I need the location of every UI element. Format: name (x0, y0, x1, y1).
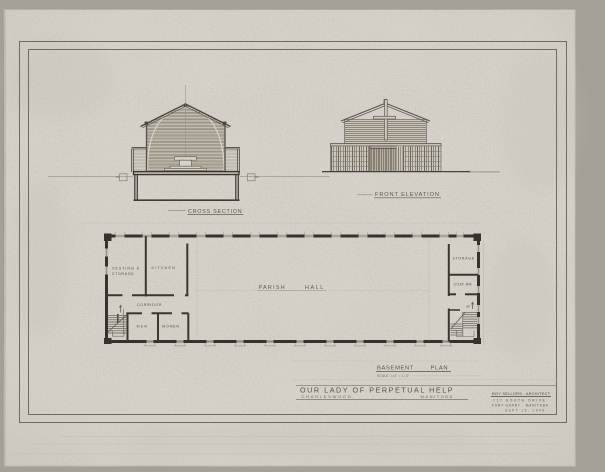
svg-text:UP: UP (466, 305, 470, 309)
svg-text:.: . (386, 394, 387, 399)
svg-text:717 SOUTH DRIVE: 717 SOUTH DRIVE (493, 399, 547, 403)
svg-text:VESTING &: VESTING & (112, 267, 140, 271)
svg-text:SCALE: 1/4" = 1'-0": SCALE: 1/4" = 1'-0" (377, 374, 410, 378)
svg-text:STORAGE: STORAGE (453, 257, 475, 261)
svg-text:FORT GARRY . MANITOBA: FORT GARRY . MANITOBA (492, 403, 549, 407)
svg-text:HALL: HALL (305, 285, 325, 291)
svg-text:MEN: MEN (137, 325, 149, 329)
svg-text:CHARLESWOOD: CHARLESWOOD (302, 394, 353, 399)
svg-text:WOMEN: WOMEN (162, 325, 180, 329)
svg-text:COAT RM: COAT RM (454, 283, 472, 287)
svg-text:PLAN: PLAN (431, 366, 449, 372)
svg-text:MANITOBA: MANITOBA (421, 394, 454, 399)
svg-text:KITCHEN: KITCHEN (152, 266, 177, 270)
svg-text:BASEMENT: BASEMENT (377, 366, 414, 372)
svg-text:PARISH: PARISH (259, 285, 286, 291)
svg-text:FRONT ELEVATION: FRONT ELEVATION (375, 192, 440, 198)
svg-text:STORAGE: STORAGE (112, 272, 134, 276)
svg-text:ROY SELLORS : ARCHITECT: ROY SELLORS : ARCHITECT (492, 392, 551, 396)
svg-text:SEPT 15, 1948: SEPT 15, 1948 (505, 408, 545, 412)
svg-text:CORRIDOR: CORRIDOR (137, 303, 162, 307)
